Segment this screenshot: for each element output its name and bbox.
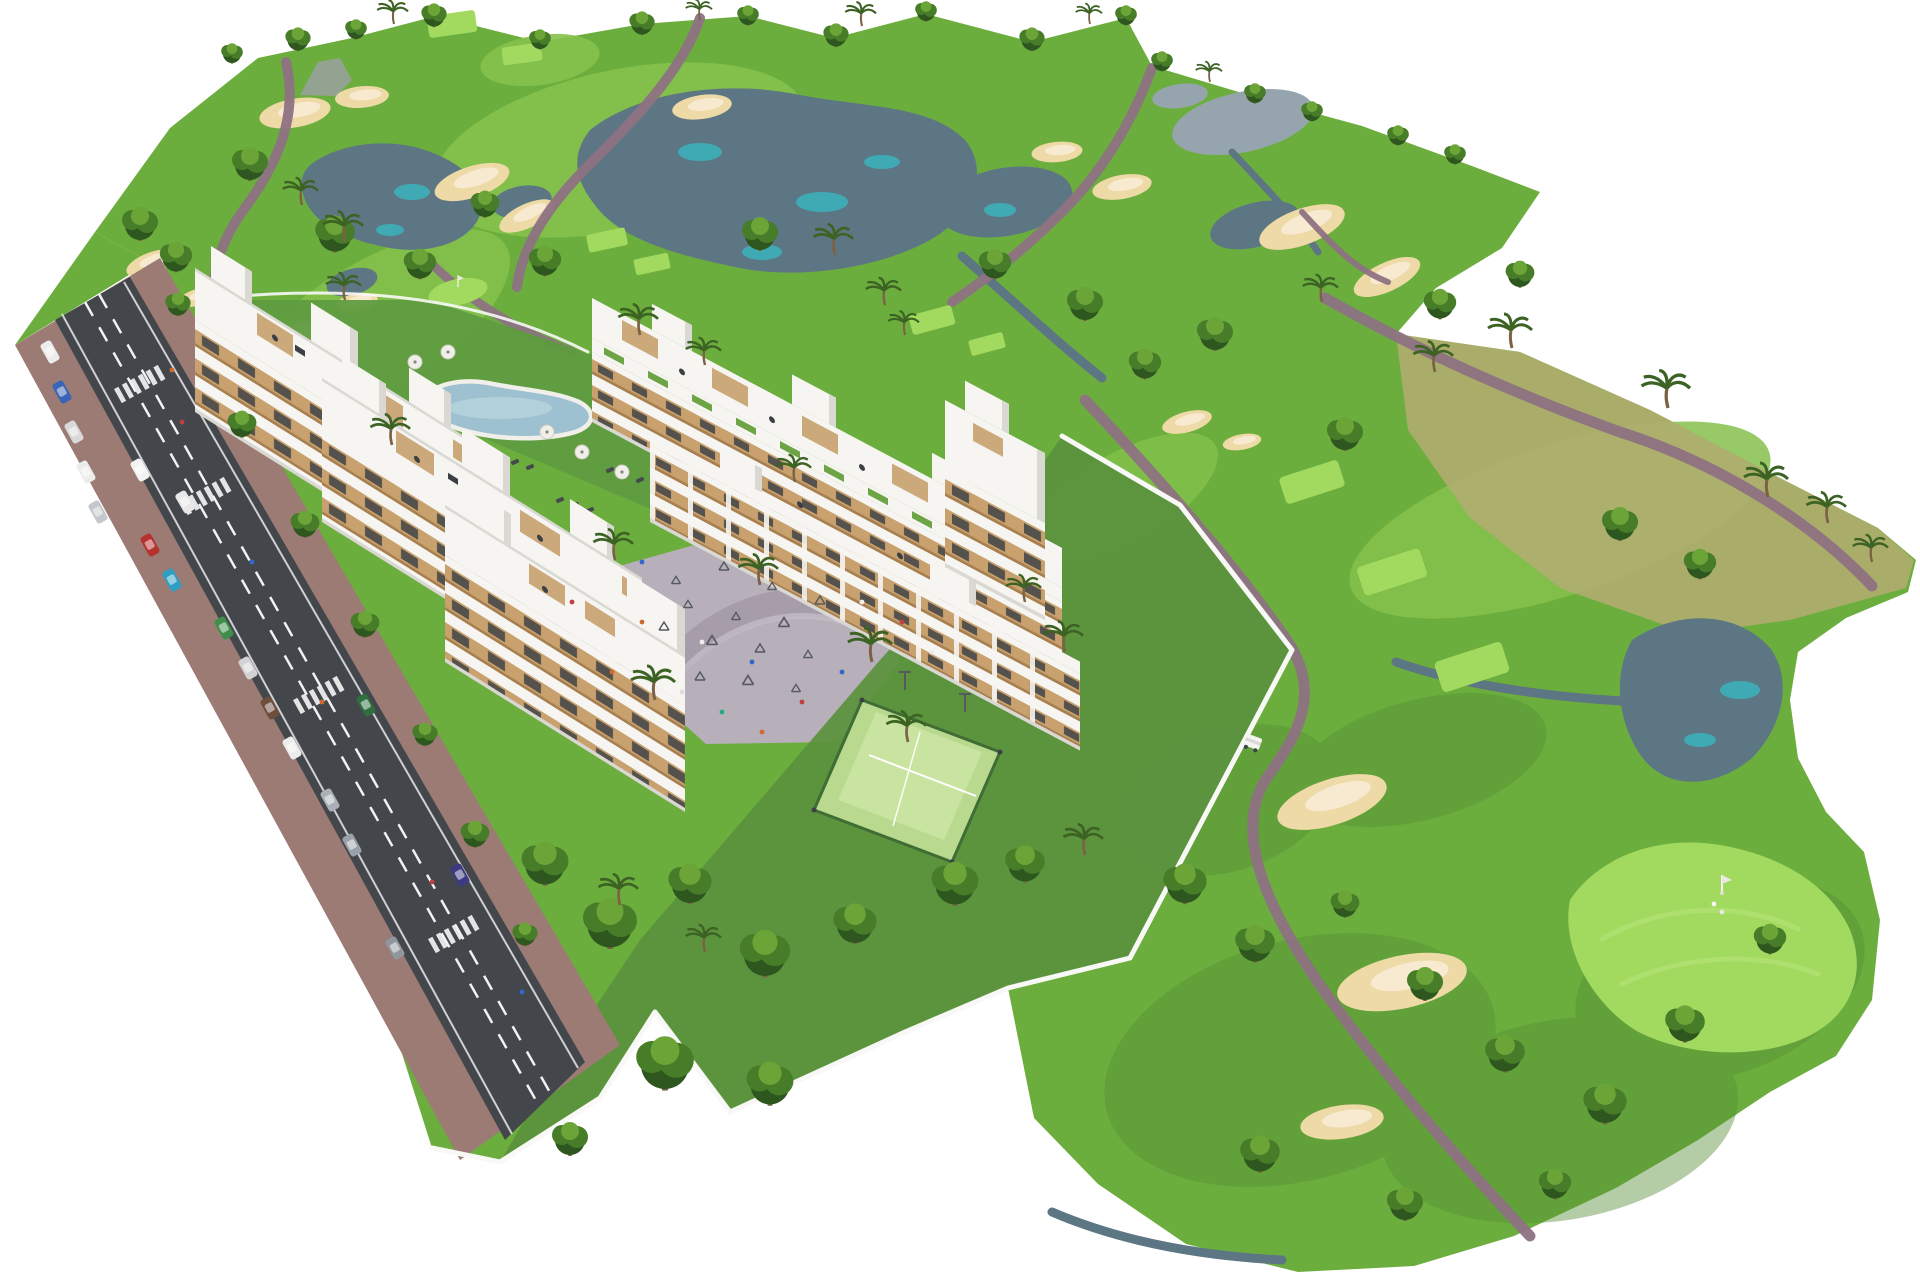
aerial-render (0, 0, 1920, 1280)
dot (700, 640, 705, 645)
dot (680, 690, 685, 695)
dot (760, 730, 765, 735)
dot (900, 620, 905, 625)
dot (1712, 902, 1717, 907)
dot (250, 560, 255, 565)
dot (570, 600, 575, 605)
dot (720, 710, 725, 715)
dot (860, 600, 865, 605)
dot (750, 660, 755, 665)
scene-svg (0, 0, 1920, 1280)
dot (1720, 910, 1725, 915)
umbrella (408, 355, 422, 369)
umbrella (575, 445, 589, 459)
umbrella (441, 345, 455, 359)
dot (640, 620, 645, 625)
dot (610, 670, 615, 675)
dot (640, 560, 645, 565)
umbrella (615, 465, 629, 479)
dot (930, 650, 935, 655)
dot (180, 420, 185, 425)
umbrella (540, 425, 554, 439)
dot (800, 700, 805, 705)
dot (170, 368, 175, 373)
dot (320, 700, 325, 705)
dot (430, 880, 435, 885)
dot (520, 990, 525, 995)
dot (840, 670, 845, 675)
